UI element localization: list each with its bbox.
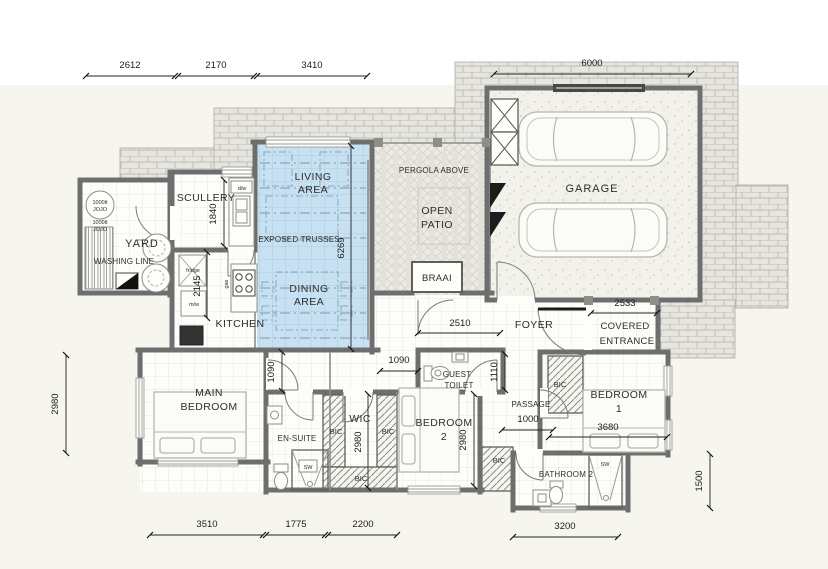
label-bic-bedroom1: BIC	[554, 380, 567, 389]
label-shower-bathroom2: SW	[601, 462, 611, 468]
label-foyer: FOYER	[515, 319, 553, 331]
car-2	[519, 203, 667, 257]
label-bedroom1-2: 1	[616, 403, 622, 415]
floor-plan-canvas: 2612 2170 3410 6000 1840 2145 6269 2510 …	[0, 0, 828, 569]
dim-garage-width: 6000	[581, 58, 602, 69]
label-fridge: fridge	[186, 268, 200, 274]
label-kitchen: KITCHEN	[216, 318, 265, 330]
dim-offset-guest: 1090	[388, 355, 409, 366]
label-living-1: LIVING	[295, 171, 332, 183]
dim-guest-depth: 1110	[489, 362, 500, 382]
label-pergola: PERGOLA ABOVE	[399, 166, 469, 175]
dim-wic: 2980	[353, 431, 364, 452]
dim-bottom-2: 1775	[285, 519, 306, 530]
label-tank1-line2: JOJO	[93, 207, 108, 213]
label-main-2: BEDROOM	[180, 401, 237, 413]
foyer-floor	[372, 295, 588, 352]
dim-top-3: 3410	[301, 60, 322, 71]
label-wic: WIC	[349, 413, 371, 425]
label-guest-2: TOILET	[444, 381, 473, 390]
dim-bottom-3: 2200	[352, 519, 373, 530]
label-yard: YARD	[125, 238, 159, 250]
label-guest-1: GUEST	[443, 370, 472, 379]
label-garage: GARAGE	[565, 183, 618, 195]
floor-plan-page: 2612 2170 3410 6000 1840 2145 6269 2510 …	[0, 0, 828, 569]
label-bedroom2-1: BEDROOM	[415, 417, 472, 429]
dim-bottom-1: 3510	[196, 519, 217, 530]
label-microwave: m/w	[189, 302, 199, 308]
dim-left: 2980	[50, 393, 61, 414]
label-passage: PASSAGE	[511, 400, 550, 409]
label-washing-line: WASHING LINE	[94, 257, 154, 266]
label-scullery: SCULLERY	[177, 192, 235, 204]
label-braai: BRAAI	[422, 273, 452, 284]
dim-bathwing: 3200	[554, 521, 575, 532]
dim-passage: 1000	[517, 414, 538, 425]
label-ensuite: EN-SUITE	[278, 434, 317, 443]
dim-bed1: 3680	[597, 422, 618, 433]
label-dining-2: AREA	[294, 296, 324, 308]
label-bic-wic-right: BIC	[382, 427, 395, 436]
label-bathroom2: BATHROOM 2	[539, 470, 594, 479]
label-shower-ensuite: SW	[304, 465, 314, 471]
label-patio-1: OPEN	[421, 205, 452, 217]
label-tank1-line1: 1000lt	[93, 200, 108, 206]
label-dining-1: DINING	[289, 283, 328, 295]
dim-kitchen: 2145	[192, 275, 203, 296]
dim-bed2: 2980	[458, 429, 469, 450]
label-entrance-1: COVERED	[600, 321, 649, 332]
label-bedroom2-2: 2	[441, 431, 447, 443]
bedroom2-bed	[399, 388, 459, 472]
label-bic-passage: BIC	[493, 456, 506, 465]
dim-entrance: 2533	[614, 298, 635, 309]
label-dishwasher: d/w	[238, 186, 247, 192]
label-bic-wic-bottom: BIC	[355, 474, 368, 483]
label-patio-2: PATIO	[421, 219, 453, 231]
dim-offset-main: 1090	[266, 361, 277, 382]
label-living-2: AREA	[298, 184, 328, 196]
label-exposed-trusses: EXPOSED TRUSSES	[258, 235, 340, 244]
label-bic-wic-left: BIC	[330, 427, 343, 436]
label-tank2-line2: JOJO	[93, 227, 108, 233]
dim-foyer: 2510	[449, 318, 470, 329]
label-gas: gas	[224, 279, 230, 288]
dim-top-1: 2612	[119, 60, 140, 71]
label-bedroom1-1: BEDROOM	[590, 389, 647, 401]
label-entrance-2: ENTRANCE	[600, 336, 655, 347]
dim-scullery: 1840	[208, 203, 219, 224]
label-tank2-line1: 1000lt	[93, 220, 108, 226]
dim-right: 1500	[694, 470, 705, 491]
label-main-1: MAIN	[195, 387, 223, 399]
dim-top-2: 2170	[205, 60, 226, 71]
car-1	[519, 112, 667, 166]
